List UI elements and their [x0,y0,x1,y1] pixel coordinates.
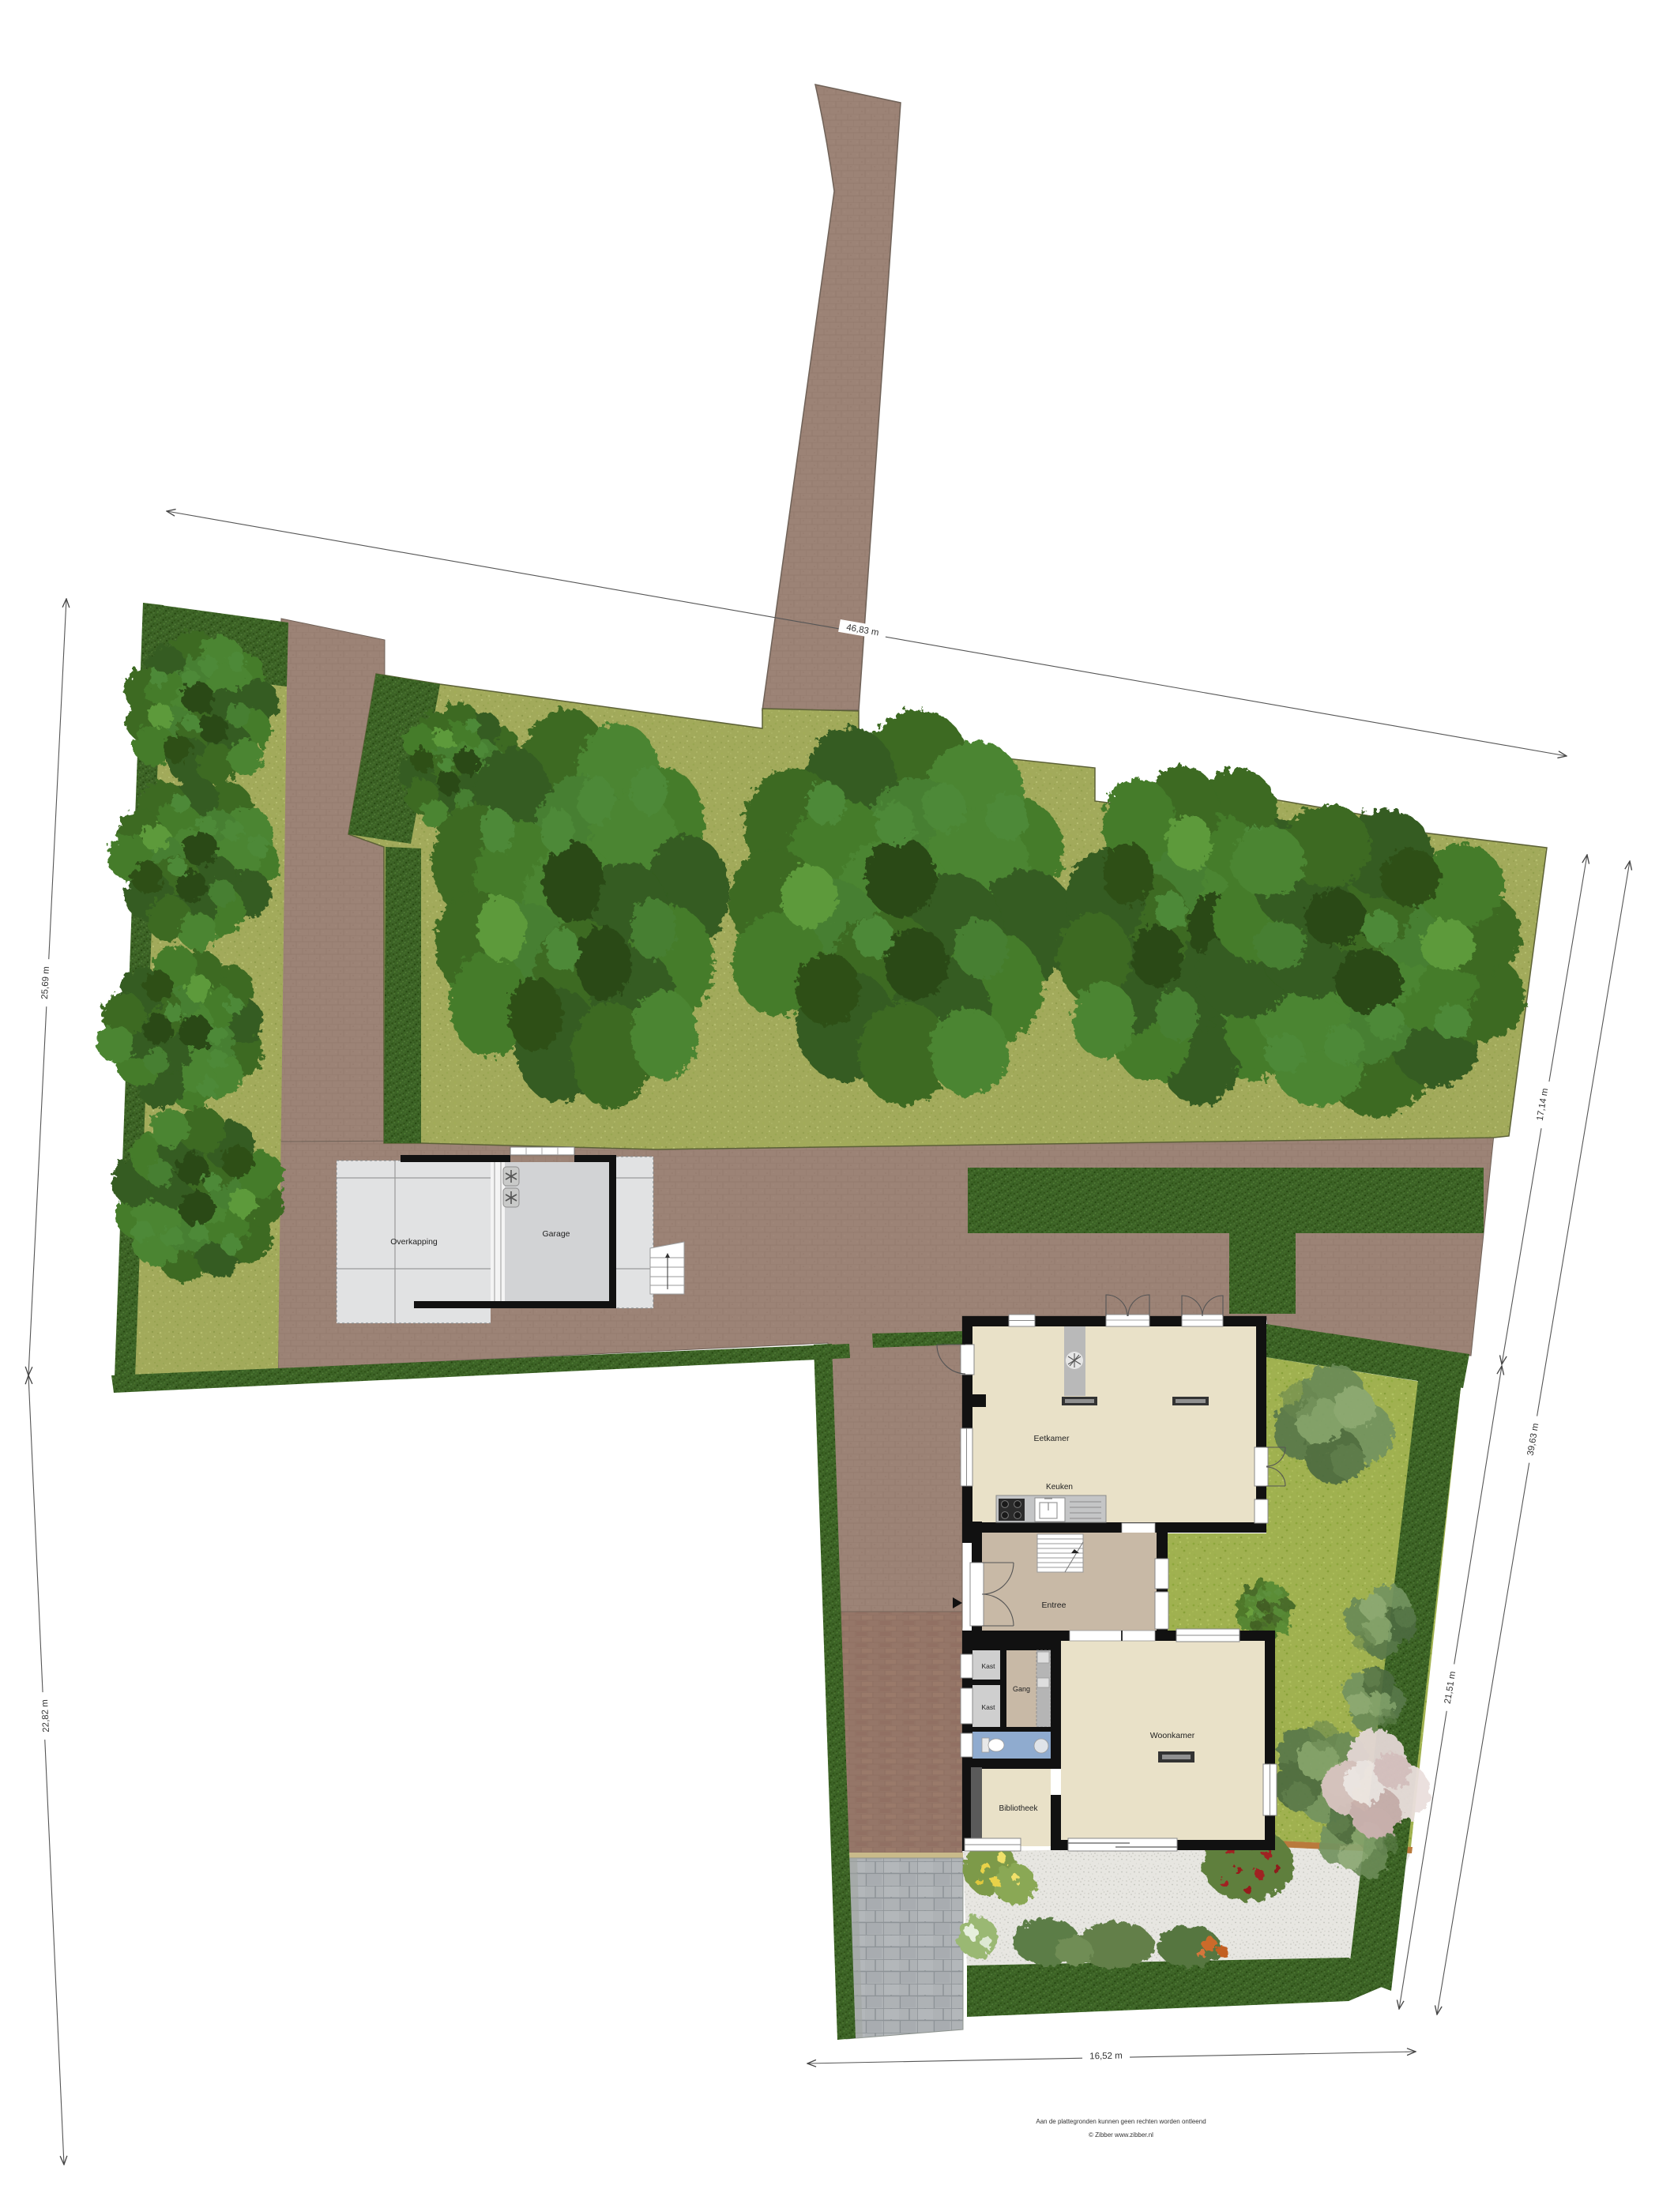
svg-text:25,69 m: 25,69 m [40,966,51,999]
svg-text:Keuken: Keuken [1046,1483,1073,1492]
svg-text:© Zibber www.zibber.nl: © Zibber www.zibber.nl [1089,2131,1153,2139]
svg-text:Garage: Garage [542,1229,570,1239]
svg-text:Gang: Gang [1013,1685,1030,1693]
svg-text:Entree: Entree [1042,1601,1066,1610]
svg-text:16,52 m: 16,52 m [1089,2052,1123,2062]
svg-text:Woonkamer: Woonkamer [1150,1731,1195,1740]
svg-text:Kast: Kast [981,1662,995,1670]
svg-text:Eetkamer: Eetkamer [1034,1434,1070,1443]
svg-text:22,82 m: 22,82 m [40,1699,51,1732]
svg-text:Aan de plattegronden kunnen ge: Aan de plattegronden kunnen geen rechten… [1036,2118,1206,2125]
svg-text:Kast: Kast [981,1703,995,1711]
svg-text:Overkapping: Overkapping [390,1237,438,1247]
svg-text:Bibliotheek: Bibliotheek [999,1804,1039,1813]
